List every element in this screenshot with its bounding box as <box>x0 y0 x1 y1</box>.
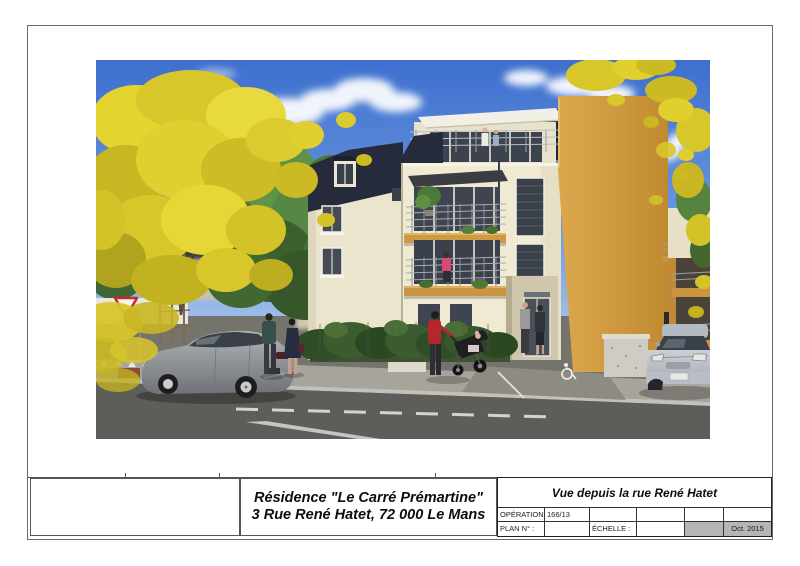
empty-cell <box>723 508 771 521</box>
rendering-svg <box>96 60 710 439</box>
rendering-image <box>96 60 710 439</box>
vent-box <box>392 188 401 201</box>
balcony-level-2 <box>404 170 508 246</box>
project-title-box: Résidence "Le Carré Prémartine" 3 Rue Re… <box>240 478 497 536</box>
plan-number-value-cell <box>544 521 589 536</box>
center-tick <box>435 473 436 477</box>
plan-sheet: { "sheet": { "background": "#ffffff", "f… <box>0 0 800 566</box>
empty-cell <box>684 508 723 521</box>
empty-info-box <box>30 478 240 536</box>
view-title: Vue depuis la rue René Hatet <box>498 478 771 508</box>
date-cell: Oct. 2015 <box>723 521 771 536</box>
title-block: Vue depuis la rue René Hatet OPÉRATION :… <box>497 477 772 537</box>
empty-cell <box>589 508 636 521</box>
scale-value-cell <box>636 521 684 536</box>
project-address-line: 3 Rue René Hatet, 72 000 Le Mans <box>252 507 486 524</box>
empty-cell <box>636 508 684 521</box>
operation-label-cell: OPÉRATION : <box>498 508 544 521</box>
revision-cell <box>684 521 723 536</box>
balcony-level-1 <box>404 240 506 299</box>
plan-number-label-cell: PLAN N° : <box>498 521 544 536</box>
project-title-line1: Résidence "Le Carré Prémartine" <box>254 490 483 507</box>
center-tick <box>125 473 126 477</box>
dormer-window <box>332 156 358 187</box>
center-tick <box>219 473 220 477</box>
title-block-table: OPÉRATION : 166/13 PLAN N° : ÉCHELLE : O… <box>498 508 771 536</box>
stone-pillar <box>602 334 650 377</box>
scale-label-cell: ÉCHELLE : <box>589 521 636 536</box>
orange-gable-wall <box>558 96 676 372</box>
operation-value-cell: 166/13 <box>544 508 589 521</box>
